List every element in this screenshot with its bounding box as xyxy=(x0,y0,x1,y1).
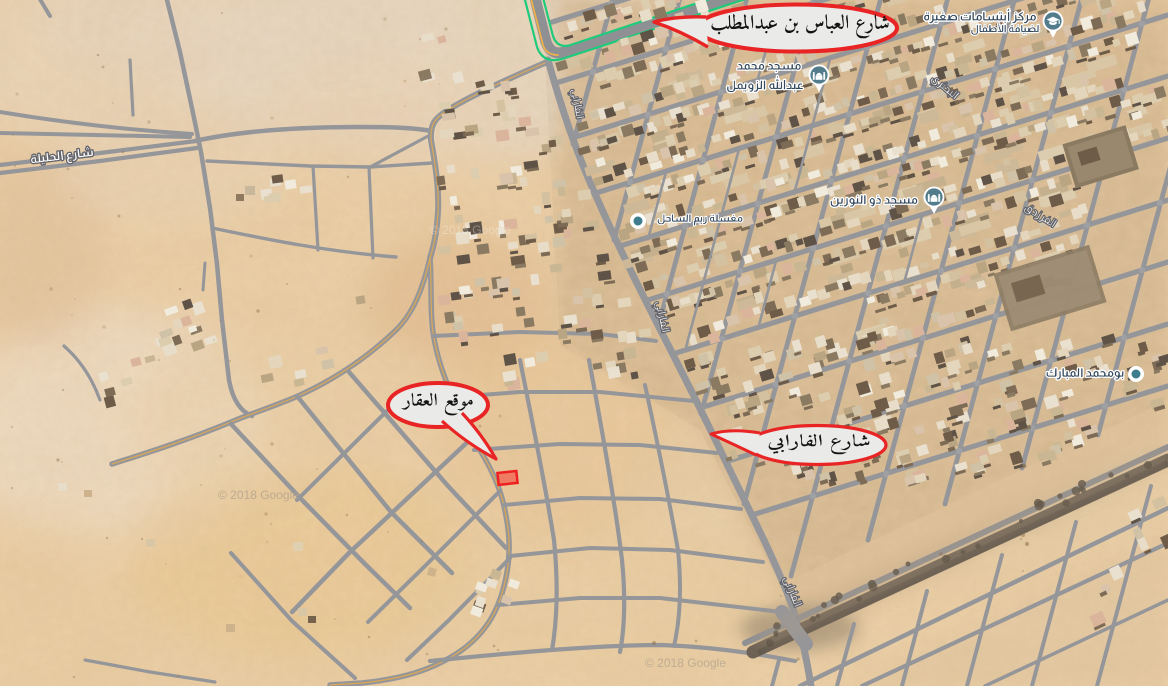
svg-text:© 2018 Google: © 2018 Google xyxy=(218,488,299,502)
svg-text:© 2018 Google: © 2018 Google xyxy=(430,223,511,237)
svg-text:© 2018 Google: © 2018 Google xyxy=(645,656,726,670)
